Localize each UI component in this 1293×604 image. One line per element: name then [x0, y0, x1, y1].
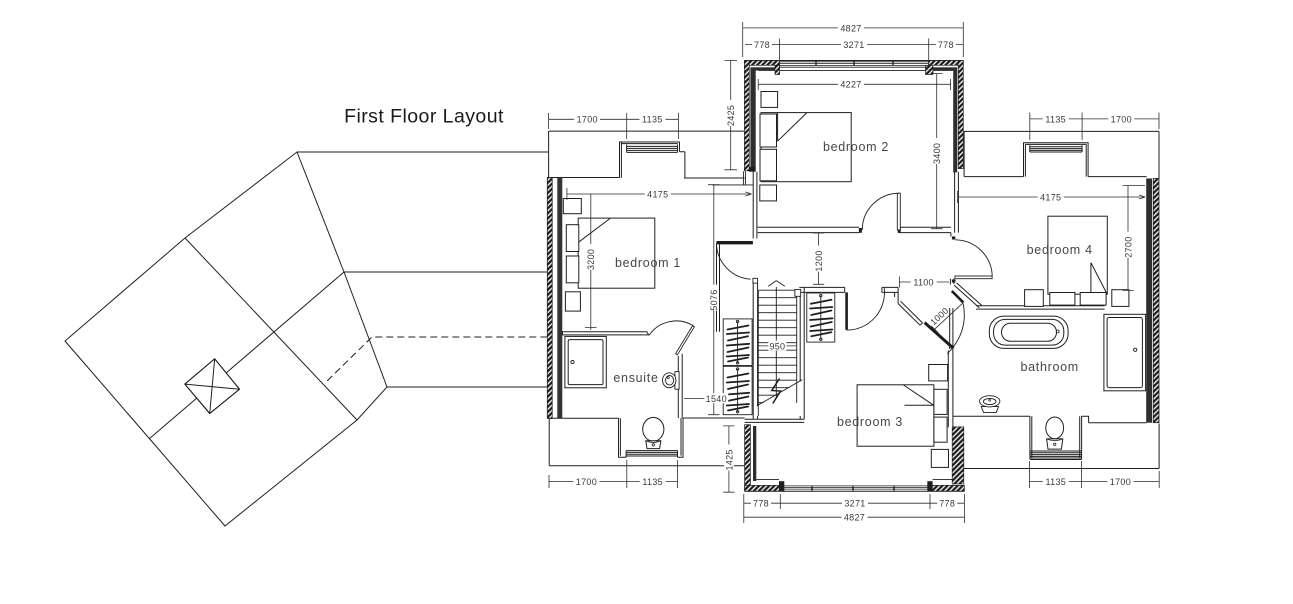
svg-text:3200: 3200	[586, 249, 596, 270]
svg-text:1135: 1135	[642, 477, 663, 487]
svg-text:3400: 3400	[932, 143, 942, 164]
svg-text:1100: 1100	[913, 277, 934, 287]
svg-text:1135: 1135	[642, 115, 663, 125]
svg-text:1540: 1540	[706, 394, 727, 404]
svg-text:bedroom 3: bedroom 3	[837, 415, 903, 429]
svg-text:4175: 4175	[1040, 192, 1061, 202]
svg-text:4175: 4175	[647, 189, 668, 199]
svg-text:1135: 1135	[1046, 477, 1067, 487]
svg-text:1700: 1700	[576, 477, 597, 487]
svg-text:ensuite: ensuite	[613, 371, 658, 385]
svg-text:778: 778	[754, 40, 770, 50]
svg-text:4827: 4827	[840, 23, 861, 33]
svg-text:First Floor Layout: First Floor Layout	[344, 106, 504, 128]
svg-text:bathroom: bathroom	[1020, 360, 1078, 374]
svg-text:bedroom 4: bedroom 4	[1027, 243, 1093, 257]
svg-text:1425: 1425	[724, 449, 734, 470]
svg-text:778: 778	[939, 499, 955, 509]
svg-text:3271: 3271	[843, 40, 864, 50]
svg-text:1000: 1000	[928, 305, 950, 327]
svg-text:778: 778	[753, 499, 769, 509]
svg-text:1700: 1700	[1110, 477, 1131, 487]
svg-text:2700: 2700	[1123, 236, 1133, 257]
svg-text:bedroom 2: bedroom 2	[823, 140, 889, 154]
svg-text:950: 950	[769, 341, 785, 351]
svg-text:1135: 1135	[1045, 114, 1066, 124]
svg-text:778: 778	[938, 40, 954, 50]
svg-text:4827: 4827	[844, 513, 865, 523]
svg-text:2425: 2425	[726, 105, 736, 126]
svg-text:3271: 3271	[844, 499, 865, 509]
svg-text:bedroom 1: bedroom 1	[615, 256, 681, 270]
svg-text:4227: 4227	[840, 80, 861, 90]
svg-text:1200: 1200	[814, 250, 824, 271]
svg-text:1700: 1700	[1111, 114, 1132, 124]
svg-text:5076: 5076	[709, 289, 719, 310]
svg-text:1700: 1700	[577, 115, 598, 125]
